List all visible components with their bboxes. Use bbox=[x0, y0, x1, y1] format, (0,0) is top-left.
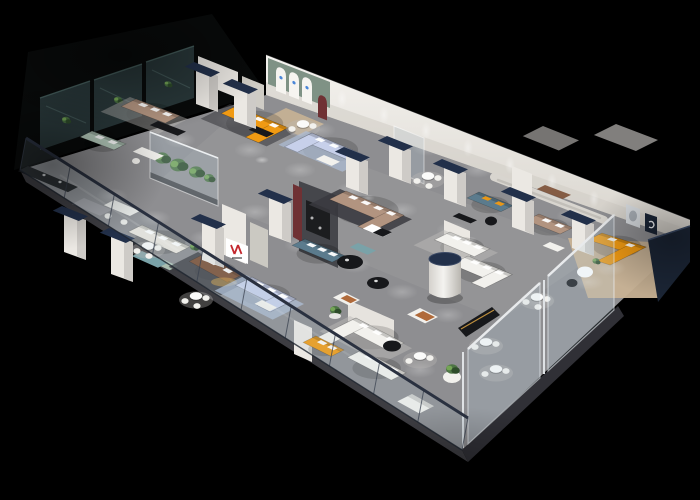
black-lounge-chair bbox=[485, 217, 497, 226]
display-pier-shade bbox=[124, 238, 133, 282]
plant-side-table bbox=[329, 313, 341, 319]
dining-set-frontcenter-table bbox=[414, 352, 426, 360]
dining-set-backroom-table bbox=[297, 120, 309, 128]
dining-set-backroom-chair bbox=[288, 126, 295, 132]
dining-set-frontleft-chair bbox=[181, 298, 188, 304]
ceiling-light-glow bbox=[379, 106, 389, 124]
ceiling-light-glow bbox=[432, 307, 464, 323]
ceiling-light-glow bbox=[337, 90, 347, 108]
display-pier-shade bbox=[457, 169, 466, 207]
shelf-item bbox=[311, 217, 314, 220]
plant-foliage bbox=[330, 307, 335, 311]
plant-foliage bbox=[451, 367, 459, 374]
ceiling-light-glow bbox=[255, 157, 269, 164]
dining-set-backroom-chair bbox=[309, 123, 316, 129]
ceiling-light-glow bbox=[386, 284, 418, 300]
dining-set-left-chair bbox=[133, 248, 140, 254]
dining-set-backcenter-chair bbox=[413, 178, 420, 184]
dining-set-backcenter-chair bbox=[425, 183, 432, 189]
black-round-table bbox=[383, 341, 401, 352]
display-pier-shade bbox=[359, 157, 368, 195]
dining-set-frontleft-chair bbox=[202, 295, 209, 301]
maroon-accent-band bbox=[293, 184, 302, 242]
dining-set-frontleft-chair bbox=[193, 303, 200, 309]
table-decor bbox=[374, 280, 378, 282]
black-round-coffee-table bbox=[367, 277, 389, 289]
plant-foliage bbox=[446, 366, 452, 371]
tall-cabinet-top bbox=[523, 126, 579, 151]
showroom-3d-render bbox=[0, 0, 700, 500]
tall-cabinet-top bbox=[594, 124, 658, 151]
ceiling-light-glow bbox=[284, 162, 316, 178]
dining-set-frontcenter-chair bbox=[426, 355, 433, 361]
display-pier-shade bbox=[525, 197, 534, 235]
dining-set-backcenter-table bbox=[422, 172, 434, 180]
ceiling-light-glow bbox=[234, 142, 266, 158]
reception-curved-wall bbox=[250, 222, 268, 268]
display-pier-shade bbox=[282, 199, 291, 243]
shelf-item bbox=[319, 227, 322, 230]
dining-set-frontcenter-chair bbox=[405, 358, 412, 364]
front-falloff bbox=[333, 407, 583, 500]
display-pier-shade bbox=[402, 146, 411, 184]
dining-set-backcenter-chair bbox=[434, 175, 441, 181]
floorplan-svg bbox=[0, 0, 700, 500]
table-decor bbox=[345, 259, 349, 262]
black-oval-coffee-table bbox=[337, 255, 363, 269]
dining-set-frontleft-table bbox=[190, 292, 202, 300]
ceiling-light-glow bbox=[463, 139, 473, 157]
ceiling-light-glow bbox=[589, 190, 599, 208]
